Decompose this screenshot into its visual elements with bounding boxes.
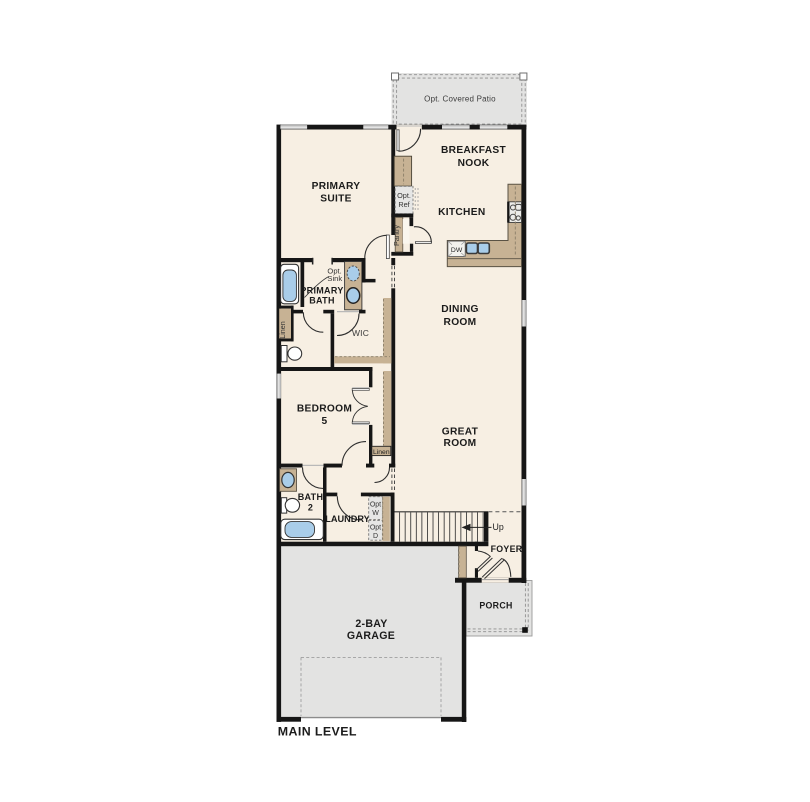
svg-text:KITCHEN: KITCHEN [438,207,485,218]
svg-text:PRIMARY: PRIMARY [312,181,361,192]
svg-text:NOOK: NOOK [458,158,490,169]
svg-text:D: D [373,533,378,540]
svg-text:Pantry: Pantry [392,225,401,246]
svg-text:BREAKFAST: BREAKFAST [441,145,506,156]
svg-text:Opt. Covered Patio: Opt. Covered Patio [424,95,496,104]
svg-text:Ref: Ref [398,200,410,209]
svg-text:GREAT: GREAT [442,426,479,437]
svg-text:Linen: Linen [278,321,287,339]
svg-text:DINING: DINING [441,304,478,315]
svg-text:BATH: BATH [298,492,324,502]
svg-text:5: 5 [322,416,328,427]
svg-text:Up: Up [493,522,504,532]
svg-text:BATH: BATH [309,295,335,305]
svg-text:Linen: Linen [373,449,390,456]
svg-text:PORCH: PORCH [479,601,512,611]
svg-text:2: 2 [308,503,313,513]
svg-text:DW: DW [451,247,463,254]
svg-text:SUITE: SUITE [320,194,352,205]
svg-text:ROOM: ROOM [444,317,477,328]
svg-text:GARAGE: GARAGE [347,630,395,642]
svg-text:W: W [372,510,379,517]
svg-text:ROOM: ROOM [444,438,477,449]
svg-text:PRIMARY: PRIMARY [300,286,343,296]
svg-text:LAUNDRY: LAUNDRY [325,514,370,524]
svg-text:Opt: Opt [370,502,381,509]
svg-text:Opt: Opt [370,525,381,532]
svg-text:Opt.: Opt. [397,191,411,200]
svg-text:FOYER: FOYER [491,544,523,554]
svg-text:BEDROOM: BEDROOM [297,403,352,414]
svg-text:2-BAY: 2-BAY [355,618,387,630]
svg-text:WIC: WIC [352,328,369,338]
svg-text:MAIN LEVEL: MAIN LEVEL [278,724,357,738]
svg-text:Sink: Sink [327,274,342,283]
